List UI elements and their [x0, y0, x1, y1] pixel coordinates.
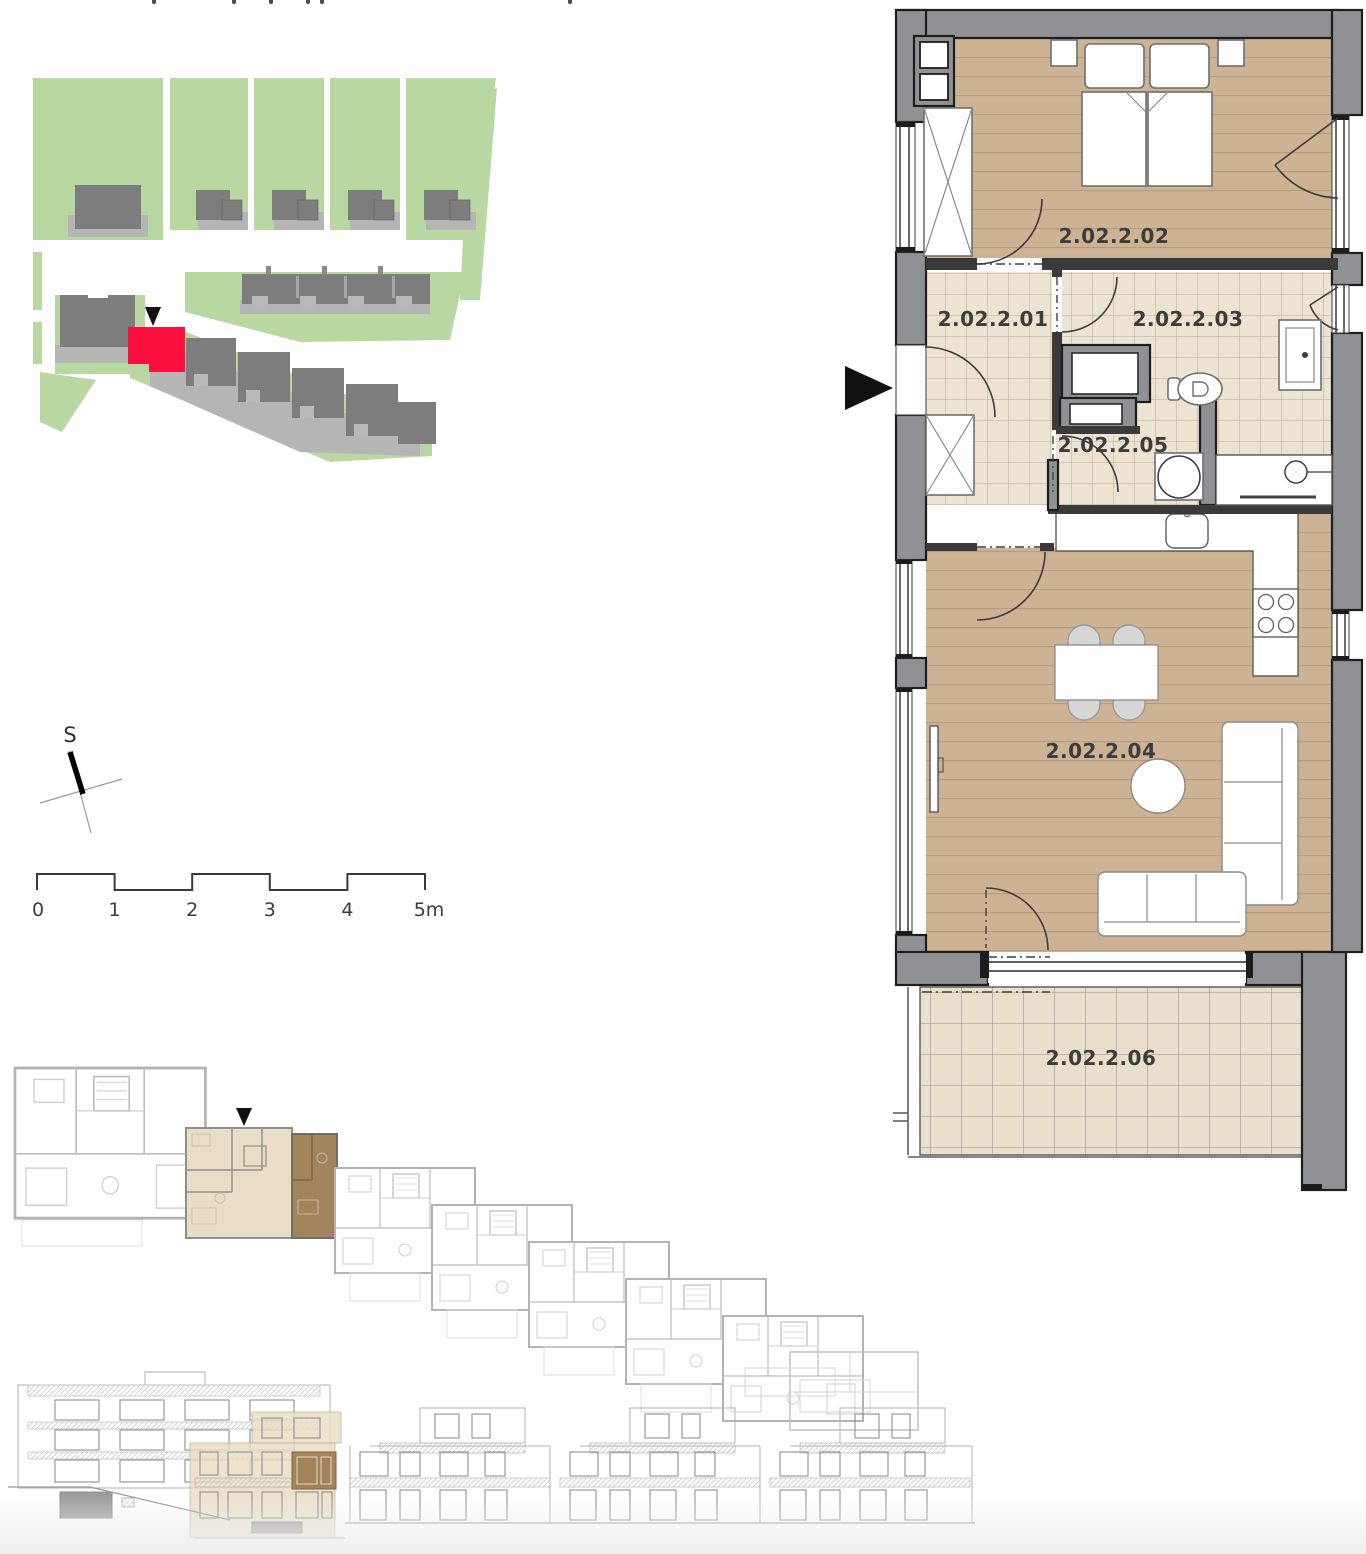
nightstand [1051, 40, 1077, 66]
north-compass-icon: S [40, 723, 122, 833]
room-label-living-room: 2.02.2.04 [1046, 739, 1157, 763]
scale-tick-label: 3 [264, 899, 276, 921]
hallway-furniture [926, 415, 974, 495]
wardrobe [924, 108, 972, 256]
overview-apartment-block [15, 1068, 205, 1218]
coffee-table [1131, 759, 1185, 813]
bathroom-vanity [1279, 320, 1321, 390]
scale-tick-label: 4 [341, 899, 353, 921]
site-plan [20, 70, 510, 515]
window [896, 122, 915, 252]
compass-and-scale: S 0 1 2 3 4 5m [20, 690, 450, 930]
toilet [1168, 373, 1222, 405]
utility-shafts [914, 36, 954, 106]
window [896, 560, 912, 658]
entrance-arrow-icon [845, 366, 893, 410]
elevation-roof-outline [745, 1368, 870, 1412]
scale-bar: 0 1 2 3 4 5m [32, 874, 444, 921]
washing-machine [1155, 453, 1203, 500]
room-label-storage: 2.02.2.05 [1058, 433, 1169, 457]
overview-unit-marker-icon [236, 1108, 252, 1126]
scale-tick-label: 2 [186, 899, 198, 921]
terrace-floor [920, 987, 1302, 1155]
stove [1253, 589, 1298, 637]
site-unit-marker-icon [145, 307, 161, 326]
shower [1216, 455, 1332, 505]
overview-highlighted-unit[interactable] [292, 1134, 337, 1238]
scale-tick-label: 0 [32, 899, 44, 921]
scale-tick-label: 1 [109, 899, 121, 921]
floor-plan-sheet: { "compass": { "label": "S" }, "scale_ba… [0, 0, 1366, 1554]
wardrobe [926, 415, 974, 495]
window [896, 688, 912, 935]
kitchen-sink [1166, 514, 1208, 548]
page-bottom-fade [0, 1496, 1366, 1554]
scale-tick-label: 5m [414, 899, 445, 921]
elevation-highlighted-unit [292, 1452, 336, 1489]
room-label-bathroom: 2.02.2.03 [1133, 307, 1244, 331]
room-label-hallway: 2.02.2.01 [938, 307, 1049, 331]
compass-label: S [63, 723, 76, 747]
nightstand [1218, 40, 1244, 66]
window [1332, 610, 1349, 660]
room-label-bedroom: 2.02.2.02 [1059, 224, 1170, 248]
overview-highlighted-section[interactable] [186, 1108, 337, 1238]
room-label-terrace: 2.02.2.06 [1046, 1046, 1157, 1070]
main-floor-plan: 2.02.2.01 2.02.2.02 2.02.2.03 2.02.2.04 … [880, 0, 1366, 1210]
